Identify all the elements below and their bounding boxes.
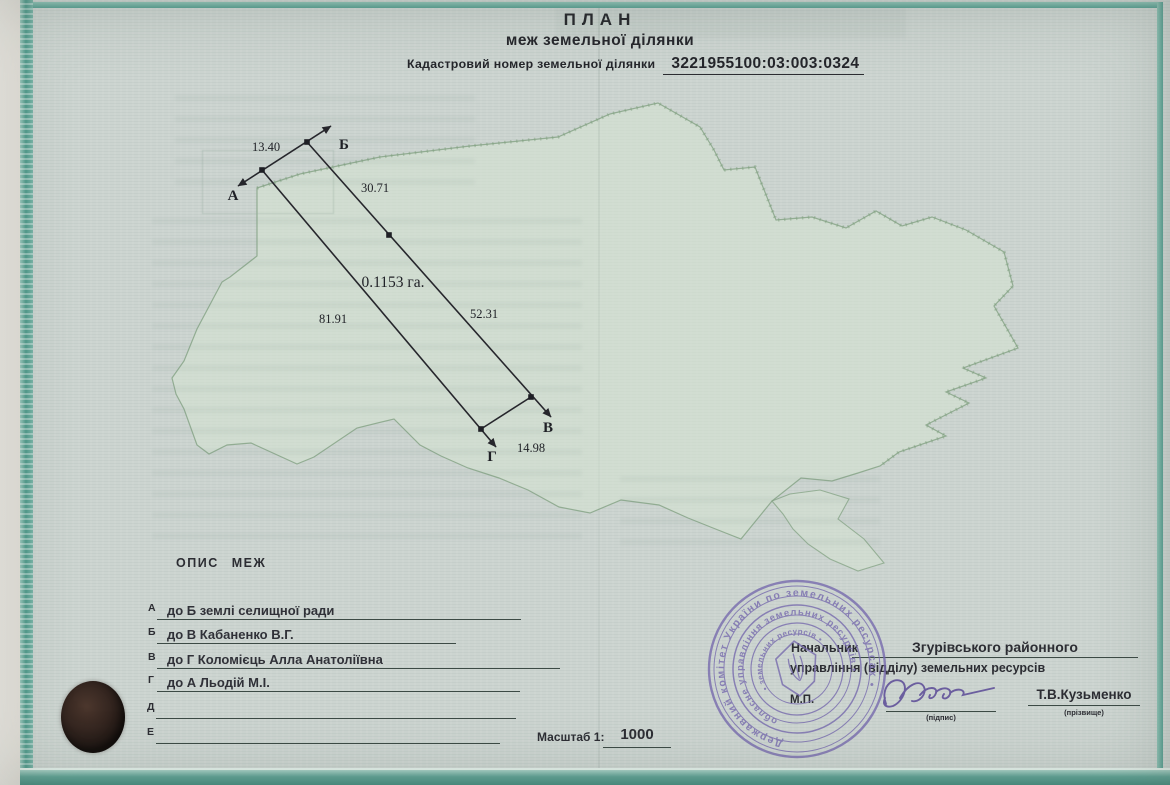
boundary-rule-g — [157, 691, 520, 692]
signature-caption: (підпис) — [886, 713, 996, 722]
cadastral-number-label: Кадастровий номер земельної ділянки — [407, 57, 655, 71]
boundary-text-b: до В Кабаненко В.Г. — [167, 627, 294, 642]
boundary-text-v: до Г Коломієць Алла Анатоліївна — [167, 652, 383, 667]
official-round-stamp: Державний комітет України по земельних р… — [702, 574, 892, 764]
scale-value: 1000 — [603, 726, 671, 743]
scale-label: Масштаб 1: — [537, 730, 604, 744]
boundary-text-g: до А Льодій М.І. — [167, 675, 270, 690]
boundaries-heading: ОПИС МЕЖ — [176, 556, 266, 570]
boundary-letter-b: Б — [148, 626, 156, 638]
boundary-text-a: до Б землі селищної ради — [167, 603, 334, 618]
certificate-border-right — [1157, 2, 1163, 782]
show-through-box — [202, 150, 334, 214]
stamp-center-emblem — [767, 634, 827, 704]
scan-left-margin — [0, 0, 20, 785]
office-name-rule — [852, 657, 1138, 658]
certificate-border-top — [33, 2, 1162, 8]
boundary-letter-d: Д — [147, 701, 154, 713]
boundary-letter-a: А — [148, 602, 156, 614]
cadastral-number-value: 3221955100:03:003:0324 — [663, 55, 864, 75]
boundary-letter-g: Г — [148, 674, 154, 686]
signature-rule — [886, 711, 996, 712]
boundary-rule-d — [156, 718, 516, 719]
page-title: ПЛАН — [300, 10, 900, 30]
paper-crease — [598, 2, 600, 783]
surname-caption: (прізвище) — [1028, 708, 1140, 717]
dark-wax-seal — [61, 681, 125, 753]
boundary-rule-b — [157, 643, 456, 644]
surname-rule — [1028, 705, 1140, 706]
official-surname: Т.В.Кузьменко — [1028, 687, 1140, 702]
office-name: Згурівського районного — [852, 639, 1138, 655]
certificate-border-bottom — [20, 768, 1170, 785]
boundary-rule-e — [156, 743, 500, 744]
page-subtitle: меж земельної ділянки — [300, 32, 900, 50]
scale-rule — [603, 747, 671, 748]
scanned-document: ПЛАН меж земельної ділянки Кадастровий н… — [0, 0, 1170, 785]
boundary-rule-a — [157, 619, 521, 620]
certificate-border-left — [20, 0, 33, 785]
boundary-letter-e: Е — [147, 726, 154, 738]
boundary-rule-v — [157, 668, 560, 669]
boundary-letter-v: В — [148, 651, 156, 663]
